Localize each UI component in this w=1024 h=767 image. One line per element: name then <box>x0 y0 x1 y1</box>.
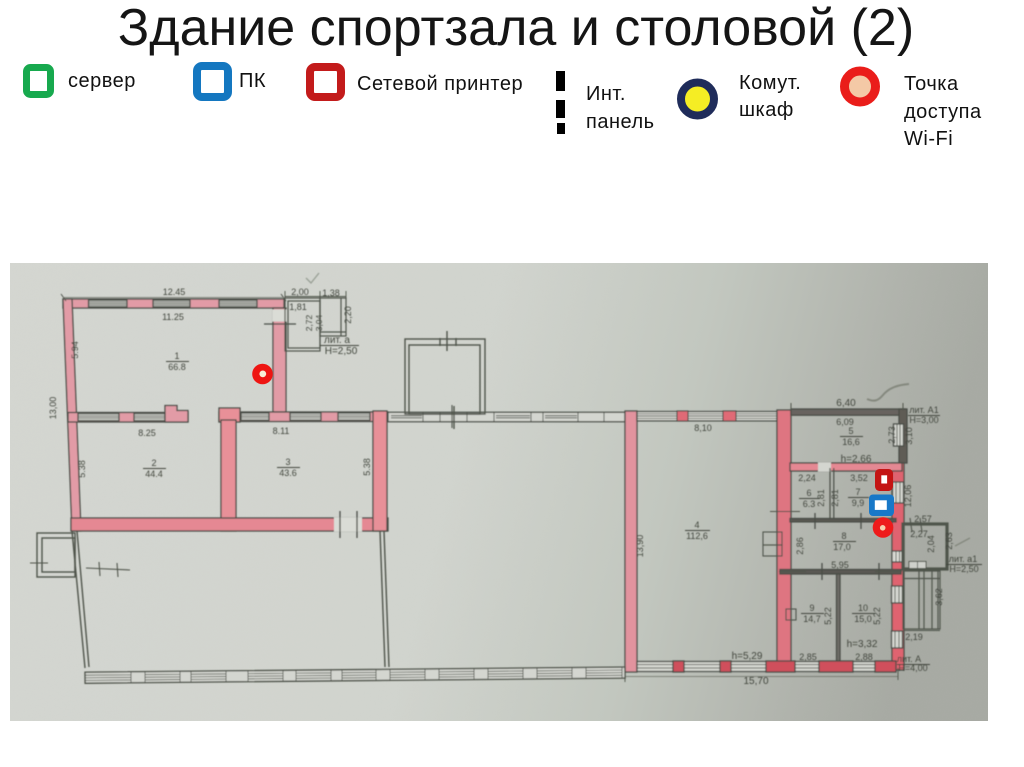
svg-text:h=2,66: h=2,66 <box>841 454 872 465</box>
svg-text:12.45: 12.45 <box>163 287 186 297</box>
svg-text:9: 9 <box>809 603 814 613</box>
svg-text:2,00: 2,00 <box>291 287 309 297</box>
svg-text:2,57: 2,57 <box>914 514 932 524</box>
svg-text:6: 6 <box>806 488 811 498</box>
svg-text:66.8: 66.8 <box>168 362 186 372</box>
svg-text:2,85: 2,85 <box>799 652 817 662</box>
svg-text:4: 4 <box>694 520 699 530</box>
svg-text:5.38: 5.38 <box>362 458 372 476</box>
svg-text:3,10: 3,10 <box>904 427 914 445</box>
svg-text:44.4: 44.4 <box>145 469 163 479</box>
svg-text:2,73: 2,73 <box>887 426 897 444</box>
svg-text:8,10: 8,10 <box>694 423 712 433</box>
svg-text:3: 3 <box>285 457 290 467</box>
svg-text:лит. А1: лит. А1 <box>909 405 938 415</box>
svg-text:Н=2,50: Н=2,50 <box>325 346 358 357</box>
svg-text:3,52: 3,52 <box>850 473 868 483</box>
svg-text:2,88: 2,88 <box>855 652 873 662</box>
svg-text:5,22: 5,22 <box>872 607 882 625</box>
svg-text:2: 2 <box>151 458 156 468</box>
svg-text:6,40: 6,40 <box>836 398 856 409</box>
svg-text:1: 1 <box>174 351 179 361</box>
svg-text:8: 8 <box>841 531 846 541</box>
svg-text:10: 10 <box>858 603 868 613</box>
svg-text:лит. а: лит. а <box>324 335 350 346</box>
svg-text:3,04: 3,04 <box>314 314 324 331</box>
svg-text:5.38: 5.38 <box>77 460 87 478</box>
svg-text:2,72: 2,72 <box>304 314 314 331</box>
svg-text:2,86: 2,86 <box>795 537 805 555</box>
svg-text:8.25: 8.25 <box>138 428 156 438</box>
svg-text:h=5,29: h=5,29 <box>732 651 763 662</box>
svg-text:2,63: 2,63 <box>944 532 954 550</box>
svg-text:5,22: 5,22 <box>823 607 833 625</box>
svg-text:Н=4,00: Н=4,00 <box>898 663 927 673</box>
svg-text:43.6: 43.6 <box>279 468 297 478</box>
svg-text:12,06: 12,06 <box>903 485 913 508</box>
svg-text:5,95: 5,95 <box>831 560 849 570</box>
svg-text:2,19: 2,19 <box>905 632 923 642</box>
svg-text:8.11: 8.11 <box>273 426 290 436</box>
svg-text:2,24: 2,24 <box>798 473 816 483</box>
svg-text:Н=3,00: Н=3,00 <box>909 415 938 425</box>
svg-text:1,38: 1,38 <box>322 288 340 298</box>
svg-text:5.94: 5.94 <box>70 341 80 359</box>
svg-text:14,7: 14,7 <box>803 614 821 624</box>
svg-text:5: 5 <box>848 426 853 436</box>
svg-text:2,20: 2,20 <box>343 306 353 324</box>
svg-text:1,81: 1,81 <box>289 302 307 312</box>
svg-text:13,00: 13,00 <box>48 397 58 420</box>
svg-text:112,6: 112,6 <box>686 531 708 541</box>
svg-text:3,62: 3,62 <box>934 588 944 606</box>
svg-text:9,9: 9,9 <box>852 498 865 508</box>
svg-text:2,81: 2,81 <box>830 489 840 507</box>
svg-text:11.25: 11.25 <box>162 312 184 322</box>
svg-text:7: 7 <box>855 487 860 497</box>
svg-text:h=3,32: h=3,32 <box>847 639 878 650</box>
svg-text:2,81: 2,81 <box>816 489 826 507</box>
svg-text:2,04: 2,04 <box>926 535 936 553</box>
svg-text:17,0: 17,0 <box>833 542 851 552</box>
svg-text:6.3: 6.3 <box>803 499 816 509</box>
svg-text:16,6: 16,6 <box>842 437 860 447</box>
svg-text:Н=2,50: Н=2,50 <box>949 564 978 574</box>
svg-text:лит. а1: лит. а1 <box>949 554 977 564</box>
svg-text:13,90: 13,90 <box>635 535 645 558</box>
svg-text:15,0: 15,0 <box>854 614 872 624</box>
svg-text:15,70: 15,70 <box>743 676 768 687</box>
